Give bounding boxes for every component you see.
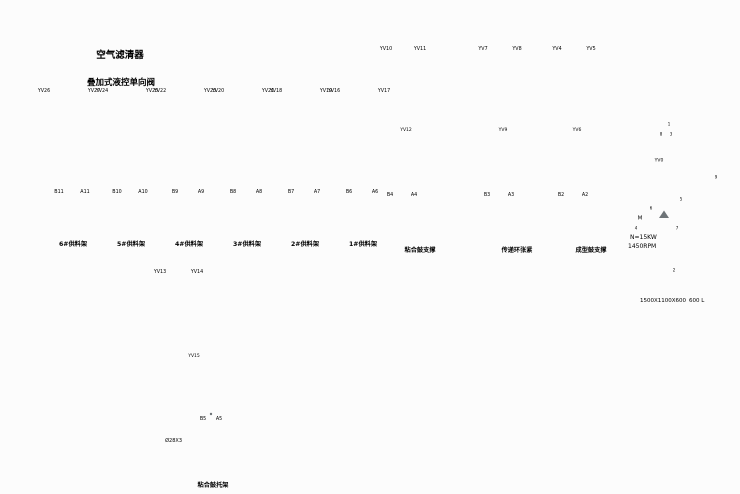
solenoid-tag: YV10 [379,46,392,52]
manifold-assembly-3: YV4YV5YV6B2A2成型鼓支撑 [549,38,617,254]
solenoid-tag: YV24 [95,88,108,94]
item-balloon: 4 [635,226,638,231]
valve-manifold-block: YV9 [477,86,541,168]
motor-rpm: 1450RPM [628,243,656,250]
item-balloon: 8 [660,132,663,137]
stacked-check-valve-block [159,124,213,168]
port-label: B3 [484,192,490,198]
station-caption: 1#供料架 [349,240,378,248]
station-caption: 4#供料架 [175,240,204,248]
solenoid-tag: YV26 [37,88,50,94]
cylinder-icon [114,211,129,244]
item-balloon: 9 [715,175,718,180]
port-label: A7 [314,189,320,195]
solenoid-tag: YV0 [654,158,664,164]
pressure-return-bus [16,171,624,408]
solenoid-tag: YV9 [498,127,508,133]
stacked-check-annotation: 叠加式液控单向阀 [87,77,155,88]
pump-manifold-block [624,163,700,186]
support-actuator-icon [581,207,617,230]
motor-letter: M [638,216,643,222]
port-label: A11 [80,189,89,195]
station-caption: 6#供料架 [59,240,88,248]
station-caption: 3#供料架 [233,240,262,248]
assembly-caption: 传递环张紧 [501,246,534,254]
port-label: B4 [387,192,393,198]
port-label: B5 [200,416,206,422]
station-caption: 5#供料架 [117,240,146,248]
solenoid-tag: YV15 [187,353,200,359]
stacked-check-valve-block [333,124,387,168]
pump-icon [656,209,672,225]
solenoid-tag: YV20 [211,88,224,94]
manifold-assembly-1: YV10YV11YV12B4A4粘合鼓支撑 [378,38,446,254]
port-label: A6 [372,189,378,195]
solenoid-tag: YV16 [327,88,340,94]
power-unit: YV0MN=15KW1450RPM1500X1100X600600 L18356… [624,120,720,304]
solenoid-tag: YV14 [190,269,203,275]
annotations: 空气滤清器叠加式液控单向阀 [87,49,155,88]
item-balloon: 2 [673,268,676,273]
motor-icon: M [633,210,647,224]
port-label: B10 [112,189,121,195]
port-label: A9 [198,189,204,195]
support-actuator-icon [507,207,543,230]
solenoid-valve-icon [101,96,163,108]
station-caption: 2#供料架 [291,240,320,248]
item-balloon: 7 [676,226,679,231]
solenoid-tag: YV5 [585,46,595,52]
solenoid-valve-icon [555,53,616,73]
port-label: B7 [288,189,294,195]
item-balloon: 6 [650,206,653,211]
solenoid-tag: YV6 [572,127,582,133]
valve-station-2: YV18YV19B7A72#供料架 [269,88,337,248]
stacked-check-valve-block [275,124,329,168]
item-balloon: 3 [670,132,673,137]
assembly-caption: 成型鼓支撑 [576,246,608,254]
solenoid-tag: YV13 [153,269,166,275]
schematic-canvas: YV26YV27B11A116#供料架YV24YV25B10A105#供料架YV… [0,0,740,494]
tank-volume: 600 L [689,298,705,304]
bottom-assembly: YV13YV14YV15B5A5Ø28X3粘合鼓托架 [153,258,238,489]
stacked-check-valve-block [217,124,271,168]
assembly-caption: 粘合鼓托架 [197,481,230,489]
valve-manifold-block: YV12 [380,86,444,168]
cylinder-icon [230,211,245,244]
cylinder-icon [346,211,361,244]
port-label: A10 [138,189,147,195]
tank-size: 1500X1100X600 [640,298,687,304]
port-label: B2 [558,192,564,198]
port-label: B8 [230,189,236,195]
cylinder-icon [288,211,303,244]
motor-power: N=15KW [630,234,657,241]
port-label: A8 [256,189,262,195]
solenoid-valve-icon [217,96,279,108]
pneumatic-hydraulic-schematic: YV26YV27B11A116#供料架YV24YV25B10A105#供料架YV… [0,0,740,494]
solenoid-valve-icon [159,96,221,108]
cylinder-icon [56,211,71,244]
air-filter-annotation: 空气滤清器 [96,49,144,61]
solenoid-valve-icon [157,279,218,299]
valve-station-3: YV20YV21B8A83#供料架 [211,88,279,248]
stacked-check-valve-block [101,124,155,168]
solenoid-valve-icon [384,53,445,73]
valve-station-4: YV22YV23B9A94#供料架 [153,88,221,248]
solenoid-valve-icon [43,96,105,108]
return-filter-icon [706,185,718,198]
port-label: A3 [508,192,514,198]
solenoid-tag: YV12 [399,127,412,133]
item-balloon: 5 [680,197,683,202]
solenoid-tag: YV11 [413,46,426,52]
cylinder-icon [172,211,187,244]
solenoid-valve-icon [481,53,542,73]
item-balloon: 1 [668,122,671,127]
support-actuator-icon [410,207,446,230]
oil-tank-icon [627,276,713,293]
port-label: A5 [216,416,222,422]
stacked-check-valve-block [43,124,97,168]
suction-filter-icon [656,272,672,288]
port-label: A2 [582,192,588,198]
solenoid-valve-icon [333,96,395,108]
port-label: B9 [172,189,178,195]
valve-station-5: YV24YV25B10A105#供料架 [95,88,163,248]
solenoid-tag: YV22 [153,88,166,94]
port-label: A4 [411,192,417,198]
port-label: B11 [54,189,63,195]
valve-manifold-block: YV6 [551,86,615,168]
port-label: B6 [346,189,352,195]
valve-manifold-block: YV15 [160,332,238,414]
solenoid-tag: YV18 [269,88,282,94]
solenoid-tag: YV7 [477,46,487,52]
manifold-assembly-2: YV7YV8YV9B3A3传递环张紧 [475,38,543,254]
solenoid-tag: YV8 [511,46,521,52]
solenoid-valve-icon [275,96,337,108]
cylinder-spec: Ø28X3 [165,437,182,444]
cylinder-icon [204,425,226,477]
valve-station-1: YV16YV17B6A61#供料架 [327,88,395,248]
solenoid-tag: YV4 [551,46,561,52]
valve-station-6: YV26YV27B11A116#供料架 [37,88,105,248]
assembly-caption: 粘合鼓支撑 [404,246,437,254]
balloon-group: 183567429 [632,120,719,273]
solenoid-tag: YV17 [377,88,390,94]
